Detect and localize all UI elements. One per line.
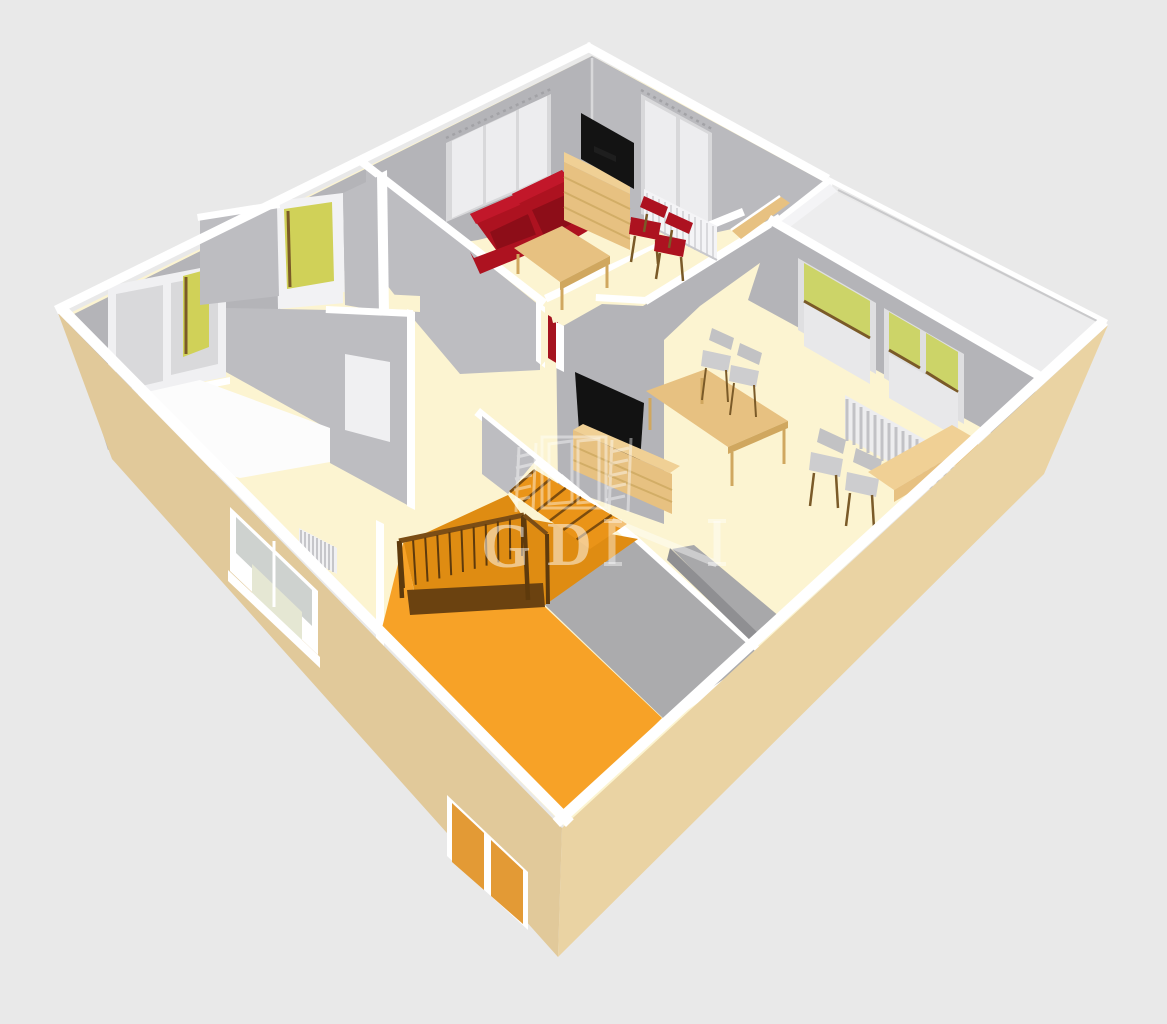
svg-text:D: D bbox=[547, 511, 592, 579]
svg-text:G: G bbox=[481, 510, 531, 581]
